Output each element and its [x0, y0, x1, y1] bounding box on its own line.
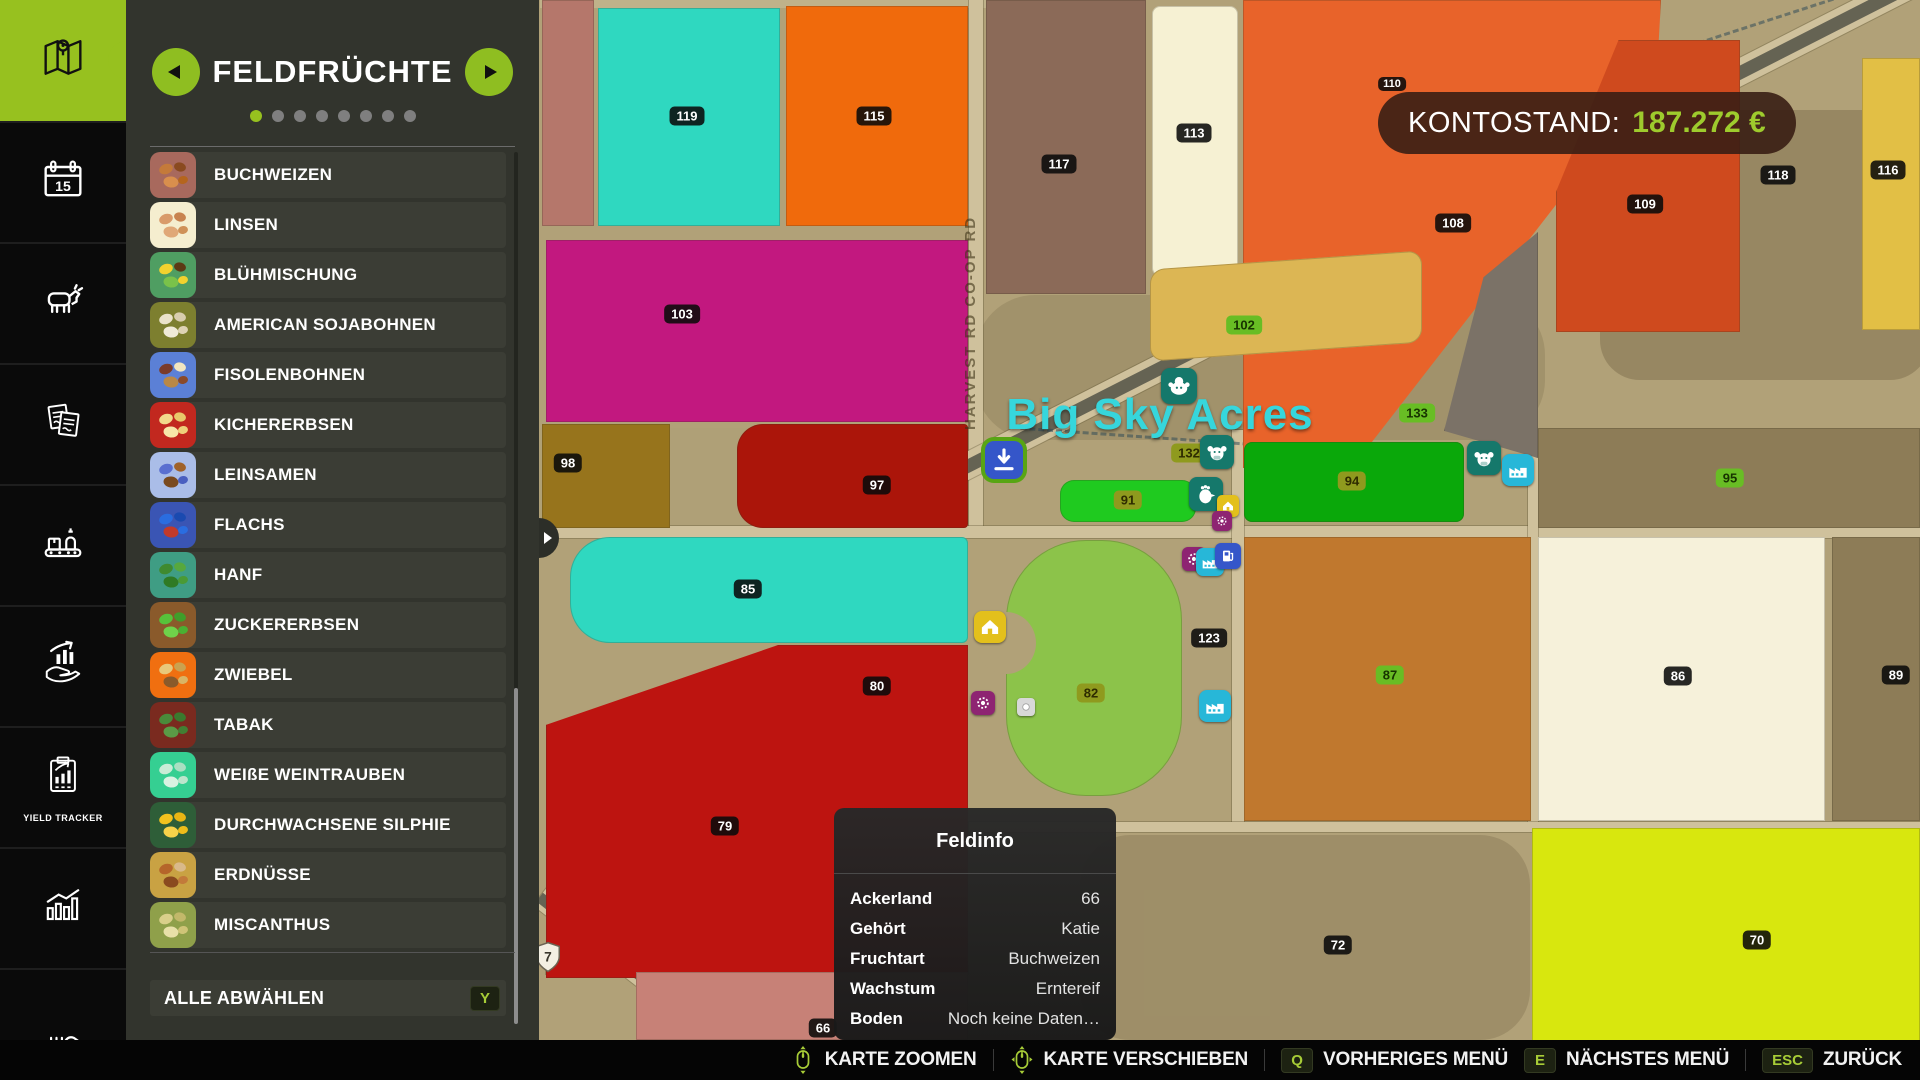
divider	[150, 146, 515, 147]
game-screen: HARVEST RD CO-OP RDBig Sky Acres11911511…	[0, 0, 1920, 1080]
field-number-badge: 110	[1378, 77, 1406, 91]
crop-icon	[150, 502, 196, 548]
map-field-102[interactable]	[1150, 250, 1422, 361]
crops-panel: FELDFRÜCHTE BUCHWEIZEN LINSEN BLÜHMISCHU…	[126, 0, 539, 1080]
production-icon	[35, 517, 91, 574]
divider	[150, 952, 515, 953]
sidebar-item-label: YIELD TRACKER	[23, 813, 103, 823]
hint-label: VORHERIGES MENÜ	[1323, 1049, 1508, 1071]
field-number-badge: 72	[1324, 936, 1352, 955]
crop-row-durchwachsene-silphie[interactable]: DURCHWACHSENE SILPHIE	[150, 802, 506, 848]
page-dot[interactable]	[272, 110, 284, 122]
scrollbar-thumb[interactable]	[514, 688, 518, 1024]
svg-text:7: 7	[544, 949, 552, 964]
sidebar-item-calendar[interactable]: 15	[0, 121, 126, 242]
separator	[1264, 1049, 1265, 1071]
sidebar-item-contracts[interactable]	[0, 363, 126, 484]
crop-label: BUCHWEIZEN	[214, 152, 332, 198]
account-balance-pill: KONTOSTAND: 187.272 €	[1378, 92, 1796, 154]
map-field-116[interactable]	[1862, 58, 1920, 330]
mouse-move-icon	[1010, 1045, 1034, 1075]
map-field-70[interactable]	[1532, 828, 1920, 1053]
crop-icon	[150, 202, 196, 248]
key-hint-esc: ESC	[1762, 1048, 1813, 1073]
field-info-row: Ackerland66	[850, 884, 1100, 914]
crop-row-wei-e-weintrauben[interactable]: WEIßE WEINTRAUBEN	[150, 752, 506, 798]
field-number-badge: 117	[1042, 155, 1077, 174]
crop-label: BLÜHMISCHUNG	[214, 252, 357, 298]
field-info-value: Katie	[1061, 919, 1100, 939]
field-number-badge: 115	[857, 107, 892, 126]
map-field-98[interactable]	[542, 424, 670, 528]
scrollbar[interactable]	[514, 152, 518, 944]
deselect-all-button[interactable]: ALLE ABWÄHLEN Y	[150, 980, 506, 1016]
statistics-icon	[35, 880, 91, 937]
field-number-badge: 97	[863, 476, 891, 495]
balance-label: KONTOSTAND:	[1408, 107, 1620, 140]
field-info-label: Fruchtart	[850, 949, 925, 969]
calendar-icon: 15	[35, 154, 91, 211]
crop-row-hanf[interactable]: HANF	[150, 552, 506, 598]
gear-icon[interactable]	[971, 691, 995, 715]
hint-karte-verschieben: KARTE VERSCHIEBEN	[1010, 1045, 1249, 1075]
field-info-label: Wachstum	[850, 979, 935, 999]
crop-label: AMERICAN SOJABOHNEN	[214, 302, 436, 348]
panel-header: FELDFRÜCHTE	[126, 0, 539, 96]
buy-point-icon[interactable]	[985, 441, 1023, 479]
crop-row-linsen[interactable]: LINSEN	[150, 202, 506, 248]
sidebar-item-sales[interactable]	[0, 605, 126, 726]
field-info-value: Buchweizen	[1008, 949, 1100, 969]
field-info-value: Erntereif	[1036, 979, 1100, 999]
field-number-badge: 91	[1114, 491, 1142, 510]
field-number-badge: 113	[1177, 124, 1212, 143]
field-number-badge: 109	[1627, 195, 1663, 214]
field-number-badge: 116	[1871, 161, 1906, 180]
field-number-badge: 70	[1743, 931, 1771, 950]
field-number-badge: 66	[809, 1019, 837, 1038]
crop-icon	[150, 402, 196, 448]
field-number-badge: 123	[1191, 629, 1227, 648]
field-info-row: GehörtKatie	[850, 914, 1100, 944]
factory-icon[interactable]	[1502, 454, 1534, 486]
crop-row-american-sojabohnen[interactable]: AMERICAN SOJABOHNEN	[150, 302, 506, 348]
crop-row-flachs[interactable]: FLACHS	[150, 502, 506, 548]
crop-row-kichererbsen[interactable]: KICHERERBSEN	[150, 402, 506, 448]
hint-vorheriges-men-: QVORHERIGES MENÜ	[1281, 1048, 1508, 1073]
crop-icon	[150, 652, 196, 698]
gear-icon[interactable]	[1212, 511, 1232, 531]
field-number-badge: 103	[664, 305, 700, 324]
page-dot[interactable]	[404, 110, 416, 122]
crop-row-tabak[interactable]: TABAK	[150, 702, 506, 748]
svg-text:15: 15	[55, 178, 71, 194]
field-number-badge: 95	[1716, 469, 1744, 488]
crop-icon	[150, 352, 196, 398]
map-field-103[interactable]	[546, 240, 968, 422]
crop-label: ZWIEBEL	[214, 652, 293, 698]
field-info-value: Noch keine Daten…	[948, 1009, 1100, 1029]
map-field[interactable]	[542, 0, 594, 226]
crop-icon	[150, 702, 196, 748]
field-number-badge: 80	[863, 677, 891, 696]
field-number-badge: 102	[1226, 316, 1262, 335]
sidebar-item-map[interactable]	[0, 0, 126, 121]
field-number-badge: 87	[1376, 666, 1404, 685]
crop-row-bl-hmischung[interactable]: BLÜHMISCHUNG	[150, 252, 506, 298]
field-number-badge: 119	[670, 107, 705, 126]
page-dot[interactable]	[294, 110, 306, 122]
farm-name-label: Big Sky Acres	[1006, 390, 1313, 440]
hint-karte-zoomen: KARTE ZOOMEN	[791, 1045, 977, 1075]
sidebar-item-animals[interactable]	[0, 242, 126, 363]
field-number-badge: 85	[734, 580, 762, 599]
road	[1232, 430, 1244, 830]
hint-zur-ck: ESCZURÜCK	[1762, 1048, 1902, 1073]
crop-label: FISOLENBOHNEN	[214, 352, 365, 398]
animals-icon	[35, 275, 91, 332]
fuel-icon[interactable]	[1215, 543, 1241, 569]
terrain-patch	[1080, 835, 1530, 1040]
next-page-button[interactable]	[465, 48, 513, 96]
field-info-rows: Ackerland66GehörtKatieFruchtartBuchweize…	[834, 874, 1116, 1034]
hint-n-chstes-men-: ENÄCHSTES MENÜ	[1524, 1048, 1729, 1073]
sidebar-item-production[interactable]	[0, 484, 126, 605]
crop-label: HANF	[214, 552, 262, 598]
contracts-icon	[35, 396, 91, 453]
crop-label: DURCHWACHSENE SILPHIE	[214, 802, 451, 848]
balance-value: 187.272 €	[1632, 106, 1765, 140]
map-icon	[35, 32, 91, 89]
sales-icon	[35, 638, 91, 695]
crop-icon	[150, 252, 196, 298]
crop-icon	[150, 852, 196, 898]
factory-icon[interactable]	[1199, 690, 1231, 722]
panel-title: FELDFRÜCHTE	[212, 54, 452, 90]
dot-icon[interactable]	[1017, 698, 1035, 716]
crop-icon	[150, 902, 196, 948]
field-number-badge: 108	[1435, 214, 1471, 233]
cow-icon[interactable]	[1467, 441, 1501, 475]
bison-icon[interactable]	[1161, 368, 1197, 404]
field-number-badge: 79	[711, 817, 739, 836]
deselect-all-label: ALLE ABWÄHLEN	[164, 988, 324, 1009]
crop-label: TABAK	[214, 702, 274, 748]
crop-label: LINSEN	[214, 202, 278, 248]
crop-icon	[150, 602, 196, 648]
field-number-badge: 89	[1882, 666, 1910, 685]
field-info-row: BodenNoch keine Daten…	[850, 1004, 1100, 1034]
mouse-scroll-icon	[791, 1045, 815, 1075]
road-name-label: HARVEST RD CO-OP RD	[962, 216, 979, 430]
hint-label: NÄCHSTES MENÜ	[1566, 1049, 1729, 1071]
bottom-hint-bar: KARTE ZOOMEN KARTE VERSCHIEBENQVORHERIGE…	[0, 1040, 1920, 1080]
map-field-85[interactable]	[570, 537, 968, 643]
field-info-row: WachstumErntereif	[850, 974, 1100, 1004]
hint-label: ZURÜCK	[1823, 1049, 1902, 1071]
field-number-badge: 118	[1761, 166, 1796, 185]
crop-icon	[150, 552, 196, 598]
page-dot[interactable]	[250, 110, 262, 122]
sidebar-item-statistics[interactable]	[0, 847, 126, 968]
key-hint-e: E	[1524, 1048, 1556, 1073]
page-dot[interactable]	[338, 110, 350, 122]
field-number-badge: 86	[1664, 667, 1692, 686]
sidebar-item-yield-tracker[interactable]: YIELD TRACKER	[0, 726, 126, 847]
crop-row-zwiebel[interactable]: ZWIEBEL	[150, 652, 506, 698]
hint-label: KARTE VERSCHIEBEN	[1044, 1049, 1249, 1071]
field-info-row: FruchtartBuchweizen	[850, 944, 1100, 974]
field-info-title: Feldinfo	[834, 808, 1116, 873]
field-number-badge: 98	[554, 454, 582, 473]
crop-icon	[150, 302, 196, 348]
map-field-117[interactable]	[986, 0, 1146, 294]
field-info-label: Ackerland	[850, 889, 932, 909]
house-icon[interactable]	[974, 611, 1006, 643]
hint-label: KARTE ZOOMEN	[825, 1049, 977, 1071]
crop-label: ERDNÜSSE	[214, 852, 311, 898]
crop-label: MISCANTHUS	[214, 902, 330, 948]
crop-icon	[150, 152, 196, 198]
key-hint-q: Q	[1281, 1048, 1313, 1073]
crop-label: KICHERERBSEN	[214, 402, 354, 448]
crop-row-miscanthus[interactable]: MISCANTHUS	[150, 902, 506, 948]
field-number-badge: 133	[1399, 404, 1435, 423]
separator	[1745, 1049, 1746, 1071]
key-hint-y: Y	[470, 986, 500, 1011]
cow-icon[interactable]	[1200, 435, 1234, 469]
crop-icon	[150, 452, 196, 498]
page-dots	[126, 110, 539, 122]
yield-tracker-icon	[35, 752, 91, 809]
crop-row-fisolenbohnen[interactable]: FISOLENBOHNEN	[150, 352, 506, 398]
field-number-badge: 82	[1077, 684, 1105, 703]
field-number-badge: 94	[1338, 472, 1366, 491]
page-dot[interactable]	[316, 110, 328, 122]
crop-list: BUCHWEIZEN LINSEN BLÜHMISCHUNG AMERICAN …	[150, 152, 506, 952]
map-field-82[interactable]	[1006, 540, 1182, 796]
crop-icon	[150, 752, 196, 798]
crop-label: LEINSAMEN	[214, 452, 317, 498]
crop-icon	[150, 802, 196, 848]
crop-label: ZUCKERERBSEN	[214, 602, 359, 648]
field-info-label: Boden	[850, 1009, 903, 1029]
page-dot[interactable]	[360, 110, 372, 122]
field-info-label: Gehört	[850, 919, 906, 939]
map-field-97[interactable]	[737, 424, 968, 528]
sidebar: 15YIELD TRACKER	[0, 0, 126, 1080]
field-info-panel: Feldinfo Ackerland66GehörtKatieFruchtart…	[834, 808, 1116, 1040]
crop-row-zuckererbsen[interactable]: ZUCKERERBSEN	[150, 602, 506, 648]
crop-row-erdn-sse[interactable]: ERDNÜSSE	[150, 852, 506, 898]
crop-label: FLACHS	[214, 502, 285, 548]
prev-page-button[interactable]	[152, 48, 200, 96]
crop-row-leinsamen[interactable]: LEINSAMEN	[150, 452, 506, 498]
field-info-value: 66	[1081, 889, 1100, 909]
crop-row-buchweizen[interactable]: BUCHWEIZEN	[150, 152, 506, 198]
crop-label: WEIßE WEINTRAUBEN	[214, 752, 405, 798]
page-dot[interactable]	[382, 110, 394, 122]
separator	[993, 1049, 994, 1071]
